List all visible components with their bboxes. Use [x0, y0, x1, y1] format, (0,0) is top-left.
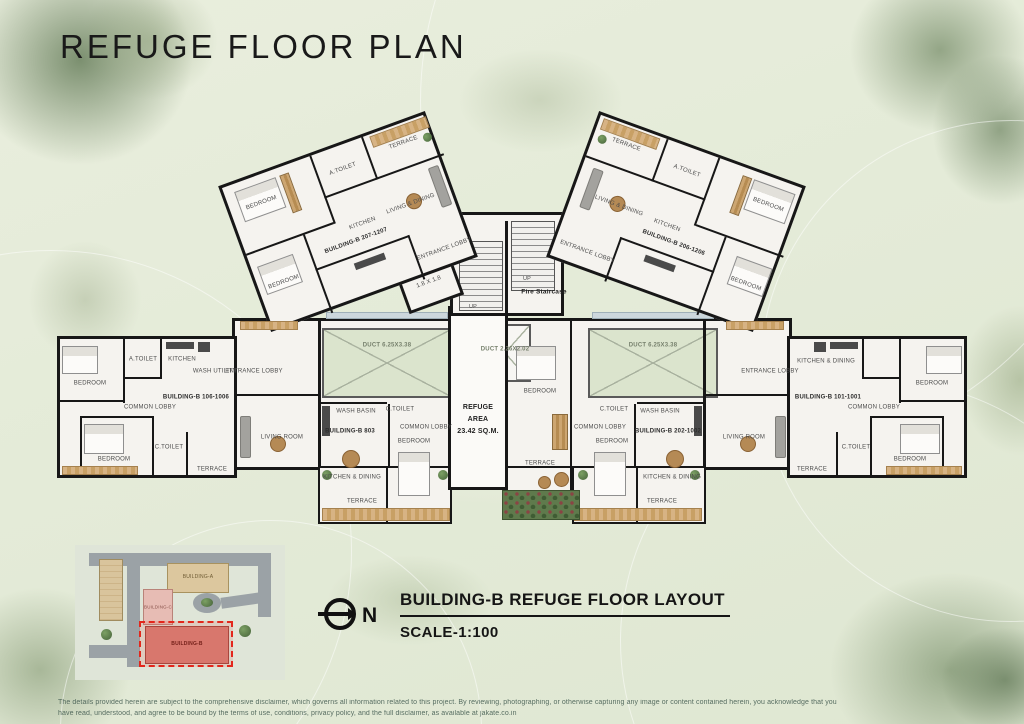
room-label: C.TOILET — [600, 407, 629, 414]
room-label: BEDROOM — [524, 389, 556, 396]
site-map-inset: BUILDING-A BUILDING-C BUILDING-B — [75, 545, 285, 680]
layout-caption-scale: SCALE-1:100 — [400, 624, 499, 641]
caption-divider — [400, 615, 730, 617]
flower-bed — [502, 490, 580, 520]
page-title: REFUGE FLOOR PLAN — [60, 28, 467, 66]
wall-segment — [694, 158, 721, 226]
room-label: COMMON LOBBY — [848, 405, 900, 412]
duct-left — [322, 328, 452, 398]
room-label: ENTRANCE LOBBY — [559, 239, 615, 265]
tree-blob — [910, 30, 1024, 230]
wall-segment — [321, 402, 387, 404]
terrace-deck — [574, 508, 702, 521]
room-label: WASH BASIN — [640, 409, 679, 416]
bed — [84, 424, 124, 454]
wall-segment — [123, 377, 162, 379]
room-label: C.TOILET — [842, 445, 871, 452]
road — [258, 553, 271, 617]
room-label: KITCHEN & DINING — [643, 475, 701, 482]
tree-blob — [820, 0, 1024, 160]
balcony-rail — [326, 312, 448, 319]
fire-staircase-label: Fire Staircase — [521, 288, 566, 295]
wall-segment — [836, 432, 838, 476]
room-label: A.TOILET — [672, 164, 701, 180]
refuge-area-room — [448, 306, 508, 490]
wall-segment — [586, 155, 706, 200]
unit-label: BUILDING-B 206-1206 — [641, 229, 706, 258]
up-label: UP — [469, 304, 477, 310]
bed — [398, 452, 430, 496]
wall-segment — [696, 224, 784, 258]
unit-label: BUILDING-B 207-1207 — [324, 227, 389, 256]
room-label: COMMON LOBBY — [124, 405, 176, 412]
up-label: UP — [523, 276, 531, 282]
north-arrow-line — [318, 612, 350, 616]
room-label: LIVING ROOM — [723, 435, 765, 442]
sofa — [775, 416, 786, 458]
wall-segment — [637, 402, 703, 404]
room-label: ENTRANCE LOBBY — [416, 237, 472, 263]
unit-label: BUILDING-B 803 — [325, 429, 375, 436]
unit-label: BUILDING-B 202-1002 — [635, 429, 701, 436]
wall-segment — [634, 404, 636, 468]
terrace-deck — [62, 466, 138, 475]
room-label: KITCHEN & DINING — [797, 359, 855, 366]
north-indicator: N — [320, 596, 360, 636]
wall-segment — [862, 339, 864, 379]
unit-label: BUILDING-B 106-1006 — [163, 395, 229, 402]
room-label: LIVING ROOM — [261, 435, 303, 442]
room-label: C.TOILET — [386, 407, 415, 414]
room-label: TERRACE — [347, 499, 377, 506]
room-label: A.TOILET — [129, 357, 157, 364]
unit-label: BUILDING-B 101-1001 — [795, 395, 861, 402]
stair-divider-wall — [505, 221, 508, 313]
disclaimer-line-1: The details provided herein are subject … — [58, 699, 837, 706]
plant — [438, 470, 448, 480]
road — [220, 592, 261, 608]
room-label: TERRACE — [647, 499, 677, 506]
wall-segment — [303, 235, 333, 314]
room-label: TERRACE — [797, 467, 827, 474]
plant — [578, 470, 588, 480]
sofa — [428, 165, 453, 208]
wall-segment — [899, 400, 965, 402]
appliance — [198, 342, 210, 352]
wall-segment — [235, 394, 320, 396]
wall-segment — [862, 377, 901, 379]
terrace-table — [554, 472, 569, 487]
wall-segment — [186, 432, 188, 476]
duct-label: DUCT 2.26X2.02 — [481, 347, 530, 354]
bed — [62, 346, 98, 374]
room-label: C.TOILET — [155, 445, 184, 452]
duct-label: DUCT 6.25X3.38 — [629, 343, 678, 350]
appliance — [814, 342, 826, 352]
plant — [596, 134, 608, 146]
wall-segment — [309, 156, 336, 224]
site-building-a-label: BUILDING-A — [183, 575, 214, 581]
wall-segment — [388, 404, 390, 468]
refuge-label: AREA — [468, 416, 489, 424]
duct-label: DUCT 6.25X3.38 — [363, 343, 412, 350]
refuge-floor-plan-page: REFUGE FLOOR PLAN FIRE LIFT 1.8 X 1.8 L — [0, 0, 1024, 724]
site-building-c-label: BUILDING-C — [144, 604, 172, 609]
wall-segment — [59, 400, 125, 402]
bed — [900, 424, 940, 454]
room-label: WASH BASIN — [336, 409, 375, 416]
wing-top-right: BEDROOM TERRACE LIVING & DINING KITCHEN … — [546, 111, 806, 332]
room-label: ENTRANCE LOBBY — [741, 369, 798, 376]
room-label: BEDROOM — [596, 439, 628, 446]
north-letter: N — [362, 604, 377, 628]
refuge-label: REFUGE — [463, 404, 493, 412]
room-label: KITCHEN — [168, 357, 196, 364]
wall-segment — [152, 416, 154, 476]
terrace-deck — [886, 466, 962, 475]
tree-blob — [920, 610, 1024, 724]
road — [89, 645, 140, 658]
north-arrowhead-icon — [348, 608, 356, 620]
wall-segment — [123, 339, 125, 403]
dining-table — [342, 450, 360, 468]
site-building-tower — [99, 559, 123, 621]
room-label: COMMON LOBBY — [400, 425, 452, 432]
room-label: COMMON LOBBY — [574, 425, 626, 432]
room-label: ENTRANCE LOBBY — [225, 369, 282, 376]
site-green — [101, 629, 112, 640]
wall-segment — [324, 153, 444, 198]
site-building-b-label: BUILDING-B — [171, 642, 202, 648]
site-building-b: BUILDING-B — [145, 626, 229, 664]
room-label: BEDROOM — [98, 457, 130, 464]
tree-blob — [790, 540, 1024, 724]
duct-right — [588, 328, 718, 398]
terrace-deck — [322, 508, 450, 521]
terrace-table — [538, 476, 551, 489]
dining-table — [666, 450, 684, 468]
plant — [422, 131, 434, 143]
room-label: A.TOILET — [329, 162, 358, 178]
site-building-c: BUILDING-C — [143, 589, 173, 625]
wall-segment — [696, 237, 726, 316]
kitchen-counter — [830, 342, 858, 349]
disclaimer-line-2: have read, understood, and agree to be b… — [58, 710, 517, 717]
bed — [926, 346, 962, 374]
refuge-label: 23.42 SQ.M. — [457, 428, 499, 436]
site-building-a: BUILDING-A — [167, 563, 229, 593]
wall-segment — [704, 394, 789, 396]
room-label: TERRACE — [525, 461, 555, 468]
room-label: BEDROOM — [398, 439, 430, 446]
room-label: KITCHEN — [653, 218, 681, 234]
room-label: TERRACE — [197, 467, 227, 474]
roundabout-green — [201, 598, 213, 607]
terrace-deck — [726, 321, 784, 330]
wall-segment — [570, 321, 572, 468]
kitchen-counter — [166, 342, 194, 349]
room-label: KITCHEN — [349, 216, 377, 232]
wall-segment — [160, 339, 162, 379]
wall-segment — [870, 416, 944, 418]
room-label: BEDROOM — [894, 457, 926, 464]
wall-segment — [246, 222, 334, 256]
sofa — [240, 416, 251, 458]
site-green — [239, 625, 251, 637]
room-label: BEDROOM — [74, 381, 106, 388]
layout-caption-title: BUILDING-B REFUGE FLOOR LAYOUT — [400, 590, 725, 610]
wardrobe — [552, 414, 568, 450]
room-label: BEDROOM — [916, 381, 948, 388]
bed — [594, 452, 626, 496]
sofa — [579, 168, 604, 211]
room-label: KITCHEN & DINING — [323, 475, 381, 482]
terrace-deck — [240, 321, 298, 330]
wall-segment — [899, 339, 901, 403]
wall-segment — [80, 416, 154, 418]
